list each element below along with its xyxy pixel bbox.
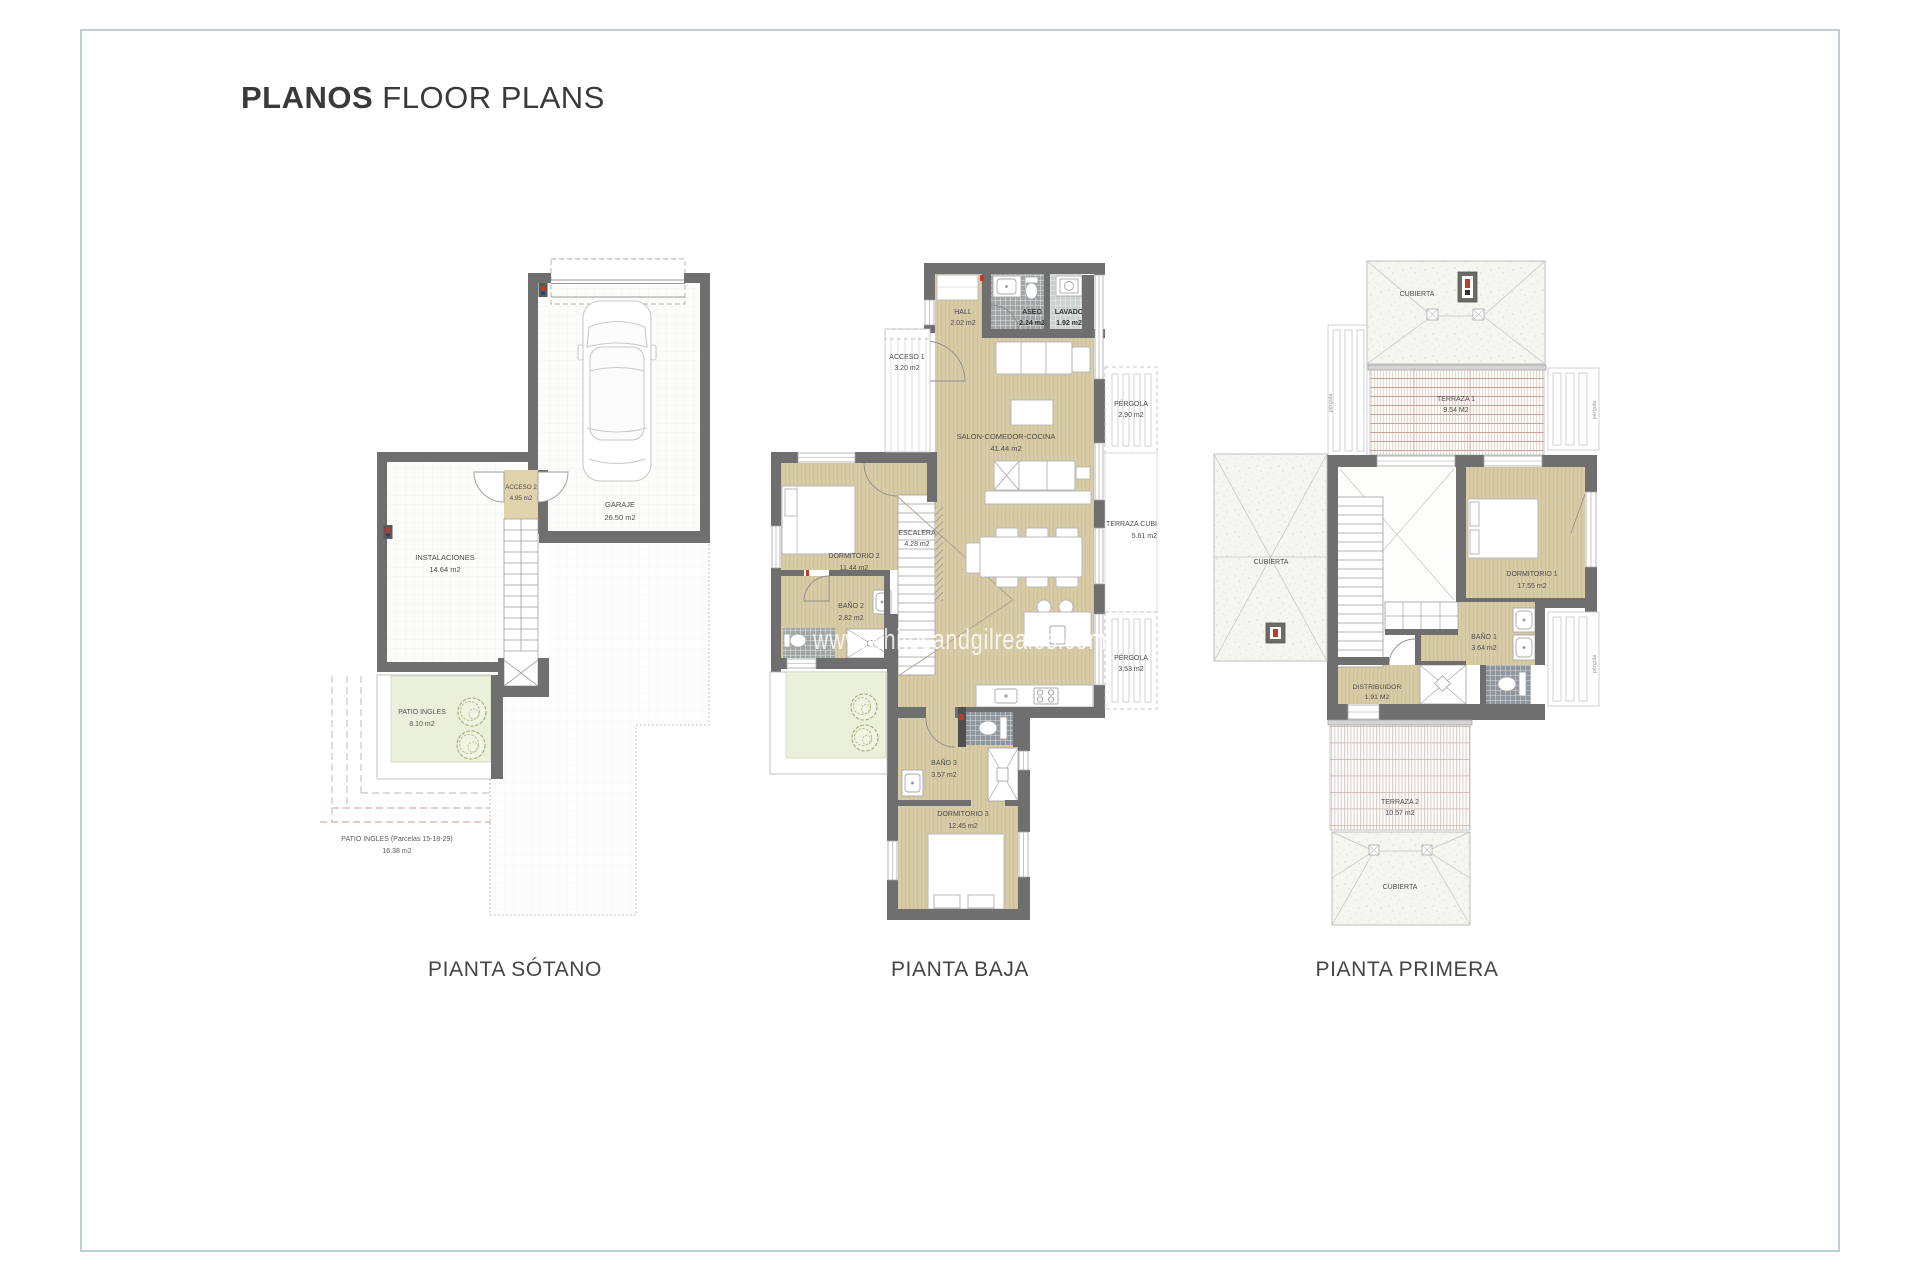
svg-text:9.54 M2: 9.54 M2	[1443, 407, 1468, 414]
svg-text:1.92 m2: 1.92 m2	[1056, 320, 1082, 327]
svg-text:DORMITORIO 1: DORMITORIO 1	[1506, 571, 1557, 578]
svg-text:2.24 m2: 2.24 m2	[1019, 320, 1045, 327]
svg-text:41.44 m2: 41.44 m2	[990, 444, 1021, 453]
svg-text:pérgola: pérgola	[1592, 654, 1598, 673]
svg-text:4.28 m2: 4.28 m2	[904, 541, 929, 548]
svg-text:BAÑO 1: BAÑO 1	[1471, 632, 1497, 641]
svg-text:3.53 m2: 3.53 m2	[1118, 666, 1143, 673]
svg-text:ESCALERA: ESCALERA	[898, 530, 936, 537]
svg-text:BAÑO 3: BAÑO 3	[931, 758, 957, 767]
svg-text:pérgola: pérgola	[1328, 393, 1334, 412]
svg-text:4.95 m2: 4.95 m2	[510, 495, 533, 502]
svg-text:26.50 m2: 26.50 m2	[604, 513, 635, 522]
svg-text:PÉRGOLA: PÉRGOLA	[1114, 653, 1148, 662]
svg-text:2.82 m2: 2.82 m2	[838, 615, 863, 622]
svg-text:17.55 m2: 17.55 m2	[1517, 583, 1546, 590]
svg-text:CUBIERTA: CUBIERTA	[1400, 291, 1435, 298]
svg-text:12.45 m2: 12.45 m2	[948, 823, 977, 830]
svg-text:ACCESO 2: ACCESO 2	[505, 484, 537, 491]
svg-text:BAÑO 2: BAÑO 2	[838, 601, 864, 610]
svg-text:DISTRIBUIDOR: DISTRIBUIDOR	[1353, 684, 1402, 691]
svg-text:TERRAZA 2: TERRAZA 2	[1381, 799, 1419, 806]
svg-text:PIANTA SÓTANO: PIANTA SÓTANO	[428, 958, 602, 981]
svg-text:CUBIERTA: CUBIERTA	[1254, 559, 1289, 566]
svg-text:pérgola: pérgola	[1592, 400, 1598, 419]
svg-text:3.20 m2: 3.20 m2	[894, 365, 919, 372]
svg-text:PATIO INGLES: PATIO INGLES	[398, 709, 446, 716]
svg-text:TERRAZA 1: TERRAZA 1	[1437, 396, 1475, 403]
svg-text:2.90 m2: 2.90 m2	[1118, 412, 1143, 419]
svg-text:LAVADO: LAVADO	[1055, 309, 1084, 316]
svg-text:8.10 m2: 8.10 m2	[409, 721, 434, 728]
svg-text:INSTALACIONES: INSTALACIONES	[415, 553, 474, 562]
svg-text:TERRAZA CUBI: TERRAZA CUBI	[1106, 521, 1157, 528]
svg-text:HALL: HALL	[954, 309, 972, 316]
svg-text:GARAJE: GARAJE	[605, 500, 635, 509]
svg-text:16.38 m2: 16.38 m2	[382, 848, 411, 855]
svg-text:10.57 m2: 10.57 m2	[1385, 810, 1414, 817]
svg-text:5.61 m2: 5.61 m2	[1132, 533, 1157, 540]
svg-text:3.64 m2: 3.64 m2	[1471, 645, 1496, 652]
svg-text:CUBIERTA: CUBIERTA	[1383, 884, 1418, 891]
svg-text:PIANTA BAJA: PIANTA BAJA	[891, 958, 1029, 981]
svg-text:2.02 m2: 2.02 m2	[950, 320, 975, 327]
svg-text:PÉRGOLA: PÉRGOLA	[1114, 399, 1148, 408]
svg-text:www.whitesandgilreales.com: www.whitesandgilreales.com	[812, 624, 1107, 656]
svg-text:1.91 M2: 1.91 M2	[1365, 694, 1390, 701]
svg-text:DORMITORIO 2: DORMITORIO 2	[828, 553, 879, 560]
svg-text:PLANOS FLOOR PLANS: PLANOS FLOOR PLANS	[241, 80, 605, 115]
svg-text:3.57 m2: 3.57 m2	[931, 772, 956, 779]
svg-text:ASEO: ASEO	[1022, 309, 1042, 316]
svg-text:ACCESO 1: ACCESO 1	[889, 354, 925, 361]
svg-text:DORMITORIO 3: DORMITORIO 3	[937, 811, 988, 818]
svg-text:14.64 m2: 14.64 m2	[429, 565, 460, 574]
svg-text:PIANTA PRIMERA: PIANTA PRIMERA	[1315, 958, 1498, 981]
svg-text:PATIO INGLES (Parcelas 15-18-2: PATIO INGLES (Parcelas 15-18-29)	[341, 836, 452, 843]
svg-text:SALON-COMEDOR-COCINA: SALON-COMEDOR-COCINA	[957, 432, 1056, 441]
